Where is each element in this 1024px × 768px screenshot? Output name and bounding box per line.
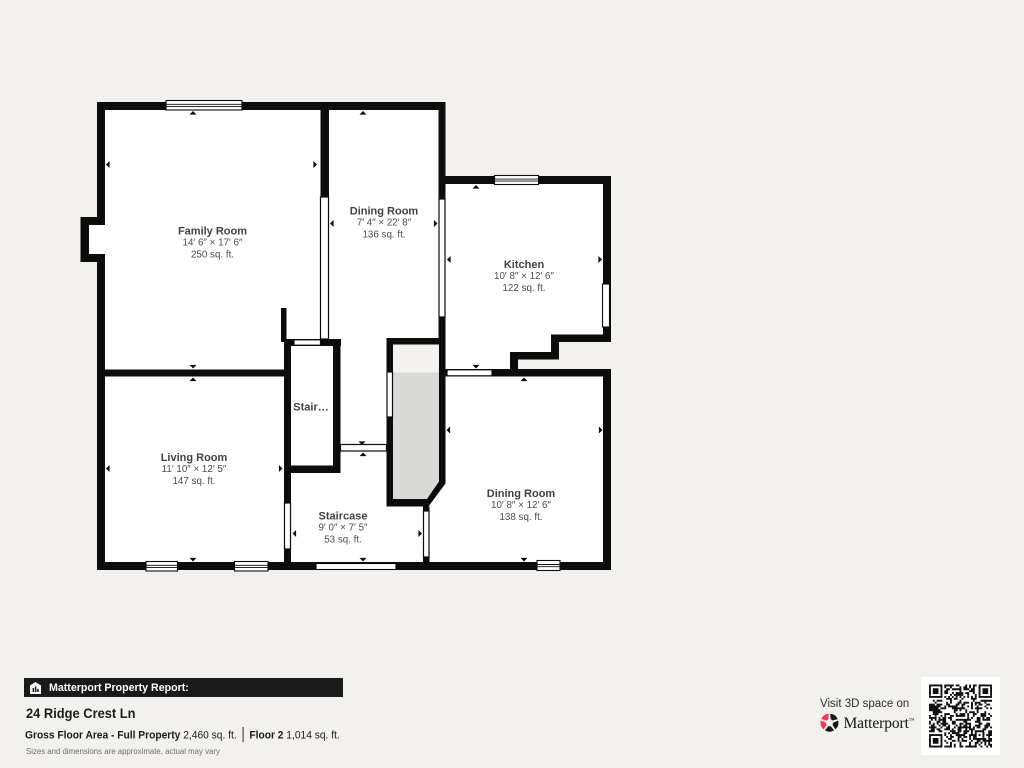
svg-text:9′ 0″ × 7′ 5″: 9′ 0″ × 7′ 5″ [318, 523, 368, 534]
svg-text:Dining Room: Dining Room [487, 488, 556, 500]
svg-text:Staircase: Staircase [319, 511, 368, 523]
svg-text:138 sq. ft.: 138 sq. ft. [499, 512, 542, 523]
svg-text:11′ 10″ × 12′ 5″: 11′ 10″ × 12′ 5″ [162, 464, 227, 475]
svg-text:250 sq. ft.: 250 sq. ft. [191, 250, 234, 261]
svg-text:Living Room: Living Room [161, 452, 228, 464]
svg-text:53 sq. ft.: 53 sq. ft. [324, 535, 362, 546]
svg-text:147 sq. ft.: 147 sq. ft. [172, 476, 215, 487]
svg-text:Stair…: Stair… [293, 402, 328, 414]
svg-text:10′ 8″ × 12′ 6″: 10′ 8″ × 12′ 6″ [491, 500, 551, 511]
svg-text:Dining Room: Dining Room [350, 206, 419, 218]
svg-text:14′ 6″ × 17′ 6″: 14′ 6″ × 17′ 6″ [183, 238, 243, 249]
svg-text:136 sq. ft.: 136 sq. ft. [362, 230, 405, 241]
svg-text:10′ 8″ × 12′ 6″: 10′ 8″ × 12′ 6″ [494, 271, 554, 282]
svg-text:Family Room: Family Room [178, 226, 247, 238]
svg-text:Kitchen: Kitchen [504, 259, 545, 271]
svg-text:7′ 4″ × 22′ 8″: 7′ 4″ × 22′ 8″ [357, 218, 412, 229]
svg-text:122 sq. ft.: 122 sq. ft. [502, 283, 545, 294]
